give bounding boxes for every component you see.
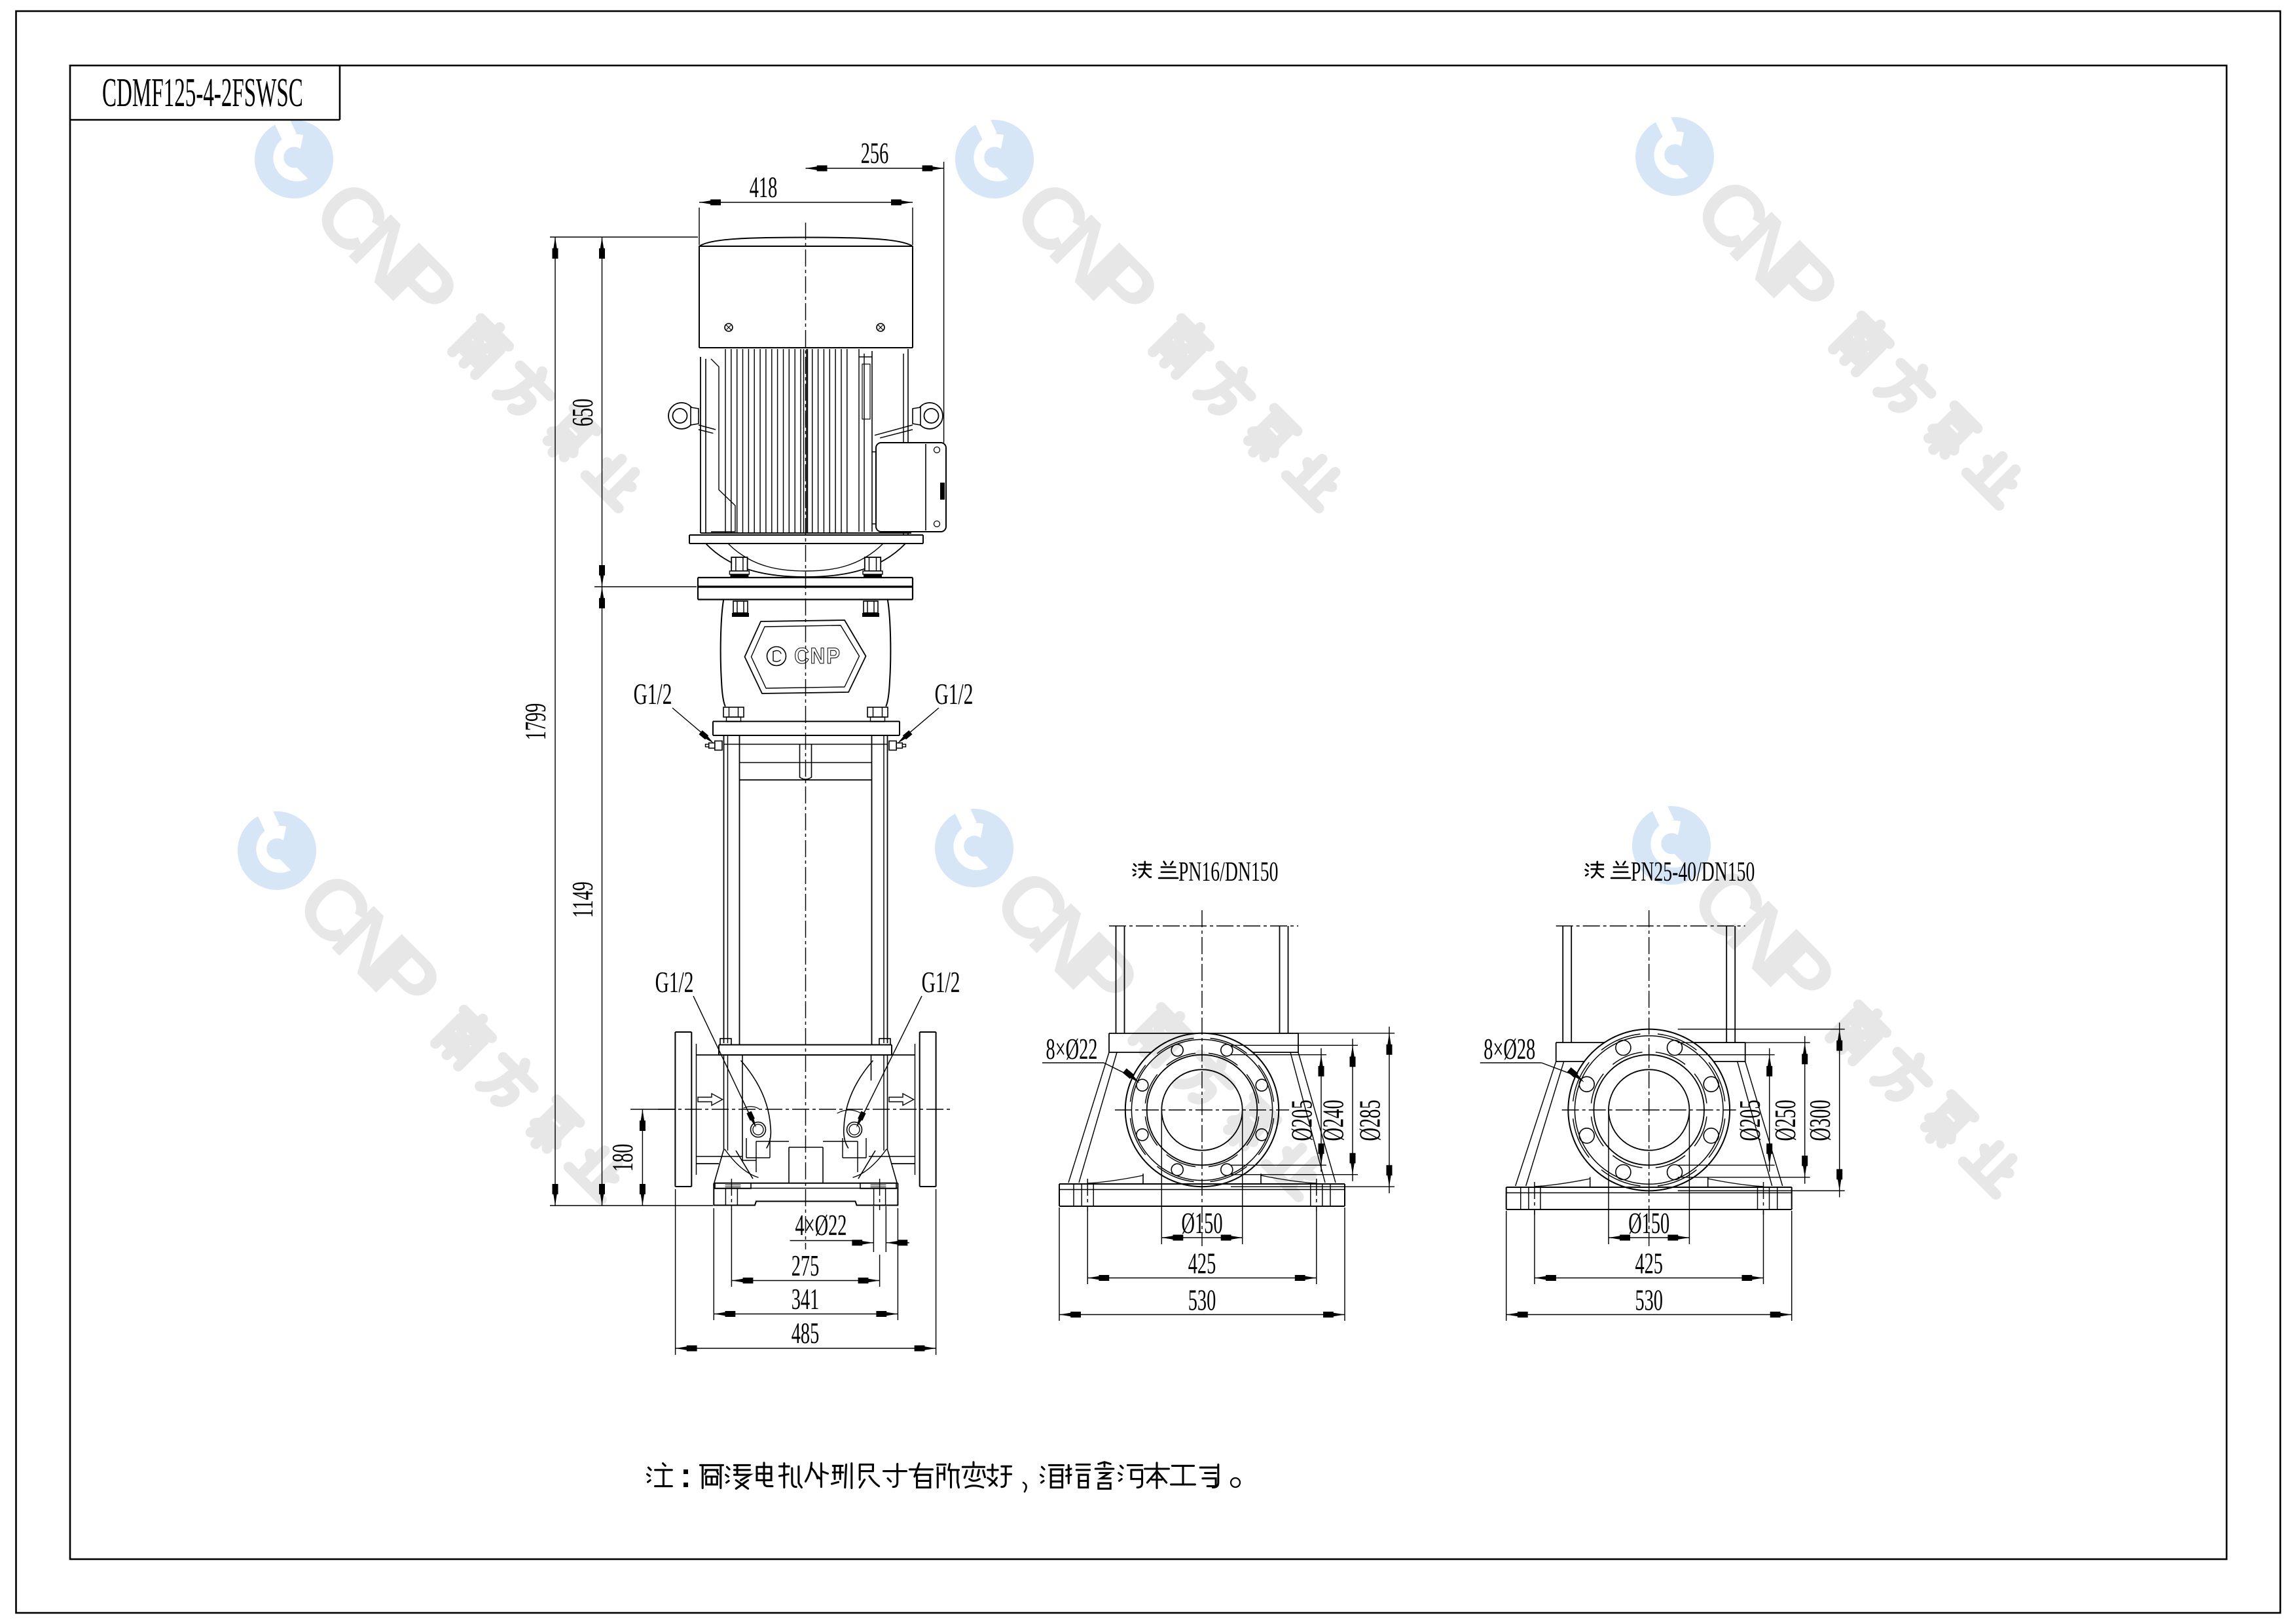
svg-text:418: 418 xyxy=(750,172,778,204)
svg-text:G1/2: G1/2 xyxy=(634,678,672,711)
svg-text:Ø205: Ø205 xyxy=(1286,1100,1319,1141)
svg-text:530: 530 xyxy=(1188,1284,1216,1317)
svg-text:530: 530 xyxy=(1635,1284,1663,1317)
svg-text:Ø240: Ø240 xyxy=(1317,1100,1350,1141)
svg-text:341: 341 xyxy=(792,1283,820,1316)
svg-text:G1/2: G1/2 xyxy=(935,678,974,711)
svg-text:275: 275 xyxy=(792,1250,820,1283)
svg-text:PN25-40/DN150: PN25-40/DN150 xyxy=(1631,856,1755,887)
svg-text:G1/2: G1/2 xyxy=(655,967,694,999)
svg-text:180: 180 xyxy=(607,1144,640,1172)
svg-text:425: 425 xyxy=(1635,1247,1663,1280)
svg-text:485: 485 xyxy=(792,1318,820,1350)
svg-text:Ø205: Ø205 xyxy=(1734,1100,1767,1141)
svg-text:1149: 1149 xyxy=(567,881,600,918)
svg-text:Ø150: Ø150 xyxy=(1628,1208,1669,1240)
svg-text:4×Ø22: 4×Ø22 xyxy=(795,1209,847,1242)
svg-text:Ø285: Ø285 xyxy=(1354,1100,1387,1141)
svg-text:425: 425 xyxy=(1188,1247,1216,1280)
svg-text:1799: 1799 xyxy=(520,703,553,741)
svg-text:G1/2: G1/2 xyxy=(922,967,960,999)
svg-text:PN16/DN150: PN16/DN150 xyxy=(1178,856,1278,887)
svg-text:256: 256 xyxy=(861,138,889,170)
svg-text:Ø250: Ø250 xyxy=(1770,1100,1802,1141)
svg-text:CDMF125-4-2FSWSC: CDMF125-4-2FSWSC xyxy=(102,69,303,115)
svg-text:Ø150: Ø150 xyxy=(1182,1208,1223,1240)
svg-text:8×Ø28: 8×Ø28 xyxy=(1484,1033,1535,1066)
svg-text:8×Ø22: 8×Ø22 xyxy=(1046,1033,1098,1066)
svg-text:650: 650 xyxy=(567,399,600,427)
svg-text:CNP: CNP xyxy=(794,643,841,669)
svg-text:Ø300: Ø300 xyxy=(1804,1100,1837,1141)
